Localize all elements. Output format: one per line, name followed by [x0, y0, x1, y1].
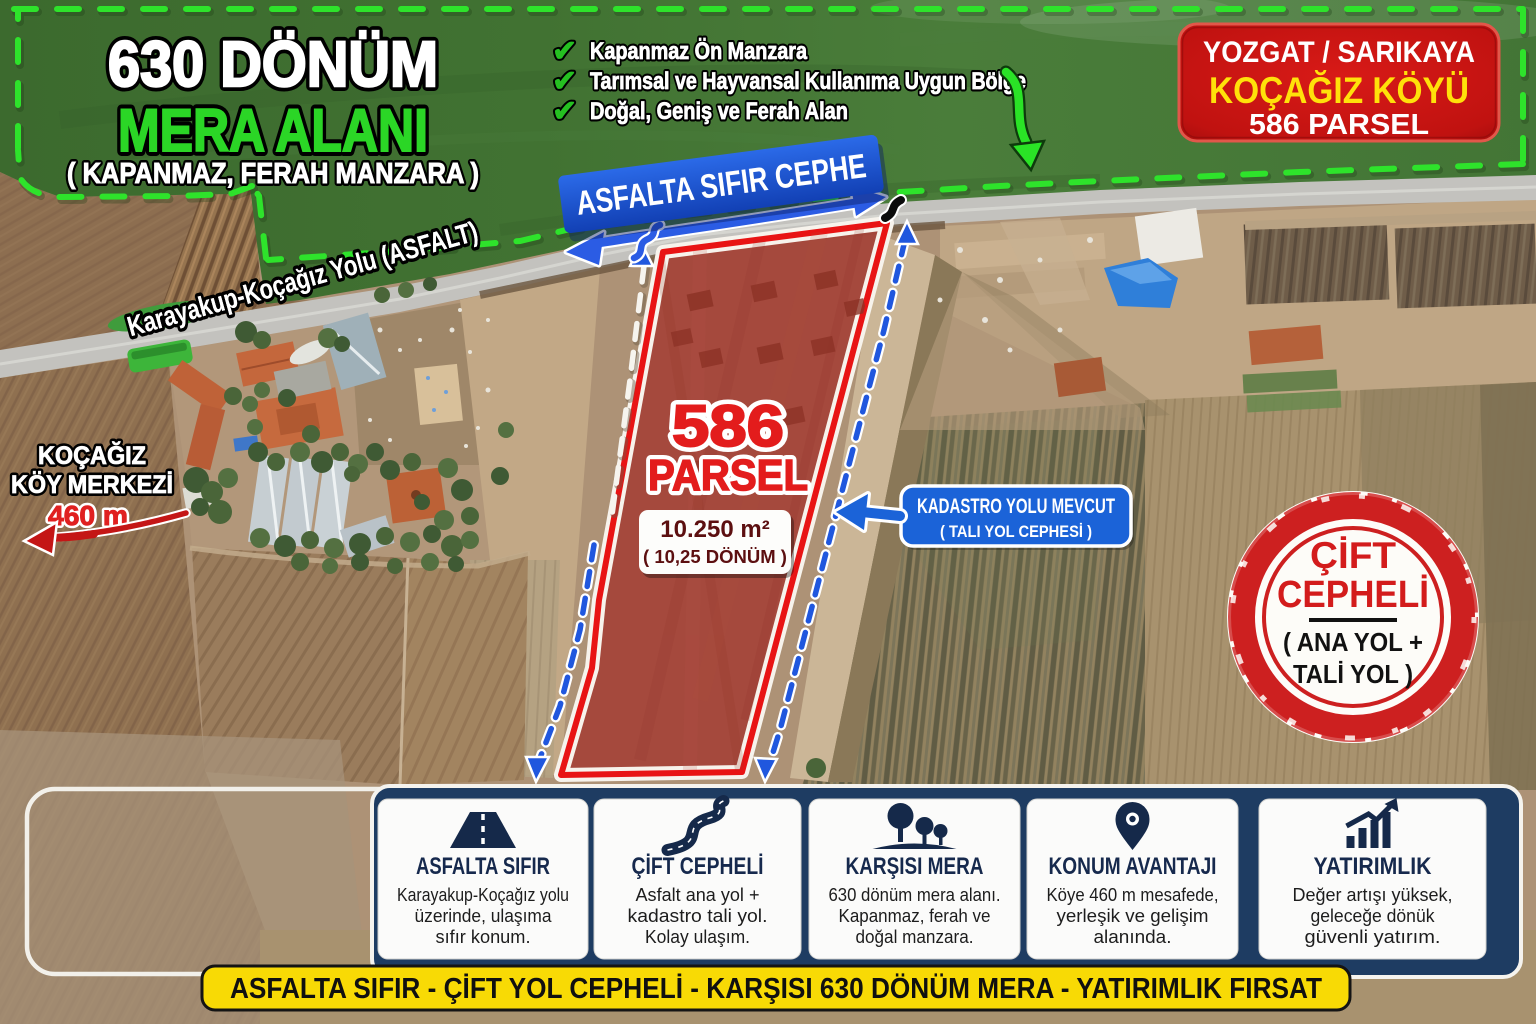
svg-text:KOÇAĞIZ KÖYÜ: KOÇAĞIZ KÖYÜ	[1209, 70, 1469, 111]
svg-text:Kolay ulaşım.: Kolay ulaşım.	[645, 927, 750, 947]
svg-text:PARSEL: PARSEL	[648, 451, 808, 500]
svg-text:yerleşik ve gelişim: yerleşik ve gelişim	[1057, 906, 1209, 926]
svg-text:586: 586	[672, 394, 784, 459]
svg-text:Değer artışı yüksek,: Değer artışı yüksek,	[1293, 885, 1453, 905]
svg-text:geleceğe dönük: geleceğe dönük	[1311, 906, 1436, 926]
svg-text:586 PARSEL: 586 PARSEL	[1249, 109, 1429, 141]
svg-text:YATIRIMLIK: YATIRIMLIK	[1314, 853, 1433, 880]
svg-text:( TALI YOL CEPHESİ ): ( TALI YOL CEPHESİ )	[940, 522, 1092, 541]
svg-text:630 dönüm mera alanı.: 630 dönüm mera alanı.	[829, 885, 1001, 905]
svg-text:MERA ALANI: MERA ALANI	[118, 97, 428, 164]
svg-text:( ANA YOL +: ( ANA YOL +	[1283, 627, 1423, 657]
svg-text:ÇİFT CEPHELİ: ÇİFT CEPHELİ	[632, 853, 764, 880]
svg-text:( 10,25 DÖNÜM ): ( 10,25 DÖNÜM )	[643, 546, 787, 567]
svg-text:KOÇAĞIZ: KOÇAĞIZ	[38, 441, 146, 470]
svg-text:Doğal, Geniş ve Ferah Alan: Doğal, Geniş ve Ferah Alan	[590, 98, 848, 125]
svg-text:KÖY MERKEZİ: KÖY MERKEZİ	[11, 470, 173, 499]
svg-text:kadastro tali yol.: kadastro tali yol.	[628, 906, 768, 926]
svg-text:ÇİFT: ÇİFT	[1310, 535, 1396, 576]
svg-text:Kapanmaz Ön Manzara: Kapanmaz Ön Manzara	[590, 38, 808, 65]
svg-text:KONUM AVANTAJI: KONUM AVANTAJI	[1049, 853, 1217, 880]
svg-text:✔: ✔	[552, 35, 577, 68]
svg-text:CEPHELİ: CEPHELİ	[1277, 574, 1429, 616]
svg-text:Kapanmaz, ferah ve: Kapanmaz, ferah ve	[839, 906, 991, 926]
svg-text:Tarımsal ve Hayvansal Kullanım: Tarımsal ve Hayvansal Kullanıma Uygun Bö…	[590, 68, 1026, 95]
svg-text:Asfalt ana yol +: Asfalt ana yol +	[636, 885, 760, 905]
svg-text:TALİ YOL ): TALİ YOL )	[1293, 659, 1413, 689]
svg-text:güvenli yatırım.: güvenli yatırım.	[1305, 927, 1441, 947]
svg-text:ASFALTA SIFIR: ASFALTA SIFIR	[416, 853, 550, 880]
svg-text:ASFALTA SIFIR - ÇİFT YOL CEPHE: ASFALTA SIFIR - ÇİFT YOL CEPHELİ - KARŞI…	[230, 972, 1322, 1005]
svg-text:( KAPANMAZ, FERAH MANZARA ): ( KAPANMAZ, FERAH MANZARA )	[67, 158, 479, 190]
svg-text:Köye 460 m mesafede,: Köye 460 m mesafede,	[1047, 885, 1219, 905]
svg-text:✔: ✔	[552, 95, 577, 128]
svg-text:üzerinde, ulaşıma: üzerinde, ulaşıma	[415, 906, 553, 926]
svg-text:alanında.: alanında.	[1094, 927, 1172, 947]
svg-text:YOZGAT / SARIKAYA: YOZGAT / SARIKAYA	[1203, 36, 1475, 69]
svg-text:630 DÖNÜM: 630 DÖNÜM	[108, 28, 438, 100]
svg-text:sıfır konum.: sıfır konum.	[436, 927, 531, 947]
svg-text:KADASTRO YOLU MEVCUT: KADASTRO YOLU MEVCUT	[917, 495, 1115, 518]
svg-text:✔: ✔	[552, 65, 577, 98]
svg-text:10.250 m²: 10.250 m²	[660, 516, 769, 543]
svg-text:Karayakup-Koçağız yolu: Karayakup-Koçağız yolu	[397, 885, 569, 905]
svg-text:KARŞISI MERA: KARŞISI MERA	[846, 853, 984, 880]
svg-text:doğal manzara.: doğal manzara.	[856, 927, 974, 947]
